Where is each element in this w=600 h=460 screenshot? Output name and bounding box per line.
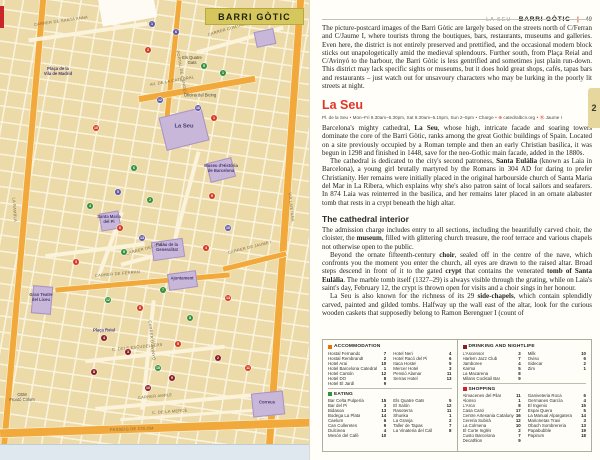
listing-section-label: SHOPPING	[469, 387, 496, 392]
listing-map-number: 9	[518, 438, 520, 443]
listing-subcolumn: Bar Celta Pulpería15Bar del Pi3Bidasoa13…	[328, 398, 386, 438]
map-marker-shop: 16	[195, 105, 201, 111]
listing-row: Papirum18	[528, 433, 586, 438]
info-separator: •	[475, 115, 477, 120]
info-segment: Jaume I	[546, 115, 562, 120]
listing-subcolumn: L'Ascensor3Harlem Jazz Club7Jamboree4Kar…	[463, 351, 521, 381]
listing-section-label: DRINKING AND NIGHTLIFE	[469, 344, 535, 349]
listings-right-half: DRINKING AND NIGHTLIFEL'Ascensor3Harlem …	[457, 340, 592, 451]
poi-label: Plaça Reial	[93, 329, 115, 334]
listing-columns: Bar Celta Pulpería15Bar del Pi3Bidasoa13…	[328, 398, 452, 438]
listing-name: Milans Cocktail Bar	[463, 376, 501, 381]
map-marker-acc: 1	[211, 115, 217, 121]
bold-term: crypt	[445, 267, 461, 275]
paragraph: The admission charge includes entry to a…	[322, 226, 592, 251]
listing-row: Milans Cocktail Bar9	[463, 376, 521, 381]
listing-name: Decathlon	[463, 438, 483, 443]
practical-info-line: Pl. de la Seu•Mon–Fri 9.30am–6.30pm, Sat…	[322, 115, 592, 121]
listing-subcolumn: Almacenes del Pilar11Alonso1L'Arca8Casa …	[463, 393, 521, 443]
category-square-icon	[463, 345, 467, 349]
listing-columns: Almacenes del Pilar11Alonso1L'Arca8Casa …	[463, 393, 587, 443]
bold-term: museum	[357, 234, 382, 242]
listing-name: Mesón del Café	[328, 433, 359, 438]
listing-name: La Vinateria del Call	[393, 428, 432, 433]
paragraph: Barcelona's mighty cathedral, La Seu, wh…	[322, 124, 592, 157]
info-segment: Pl. de la Seu	[322, 115, 348, 120]
map-title: BARRI GÒTIC	[218, 12, 291, 22]
map-marker-eat: 12	[105, 297, 111, 303]
poi-label: Gran Teatre del Liceu	[29, 293, 52, 303]
text-run: that contains the venerated	[461, 267, 547, 275]
map-marker-eat: 2	[147, 197, 153, 203]
info-segment: Mon–Fri 9.30am–6.30pm, Sat 9.30am–5.15pm…	[353, 115, 474, 120]
listing-name: Papirum	[528, 433, 544, 438]
listing-section-label: EATING	[334, 392, 353, 397]
article-page: LA SEU BARRI GÒTIC | 49 The picture-post…	[322, 0, 592, 460]
map-marker-acc: 9	[209, 193, 215, 199]
text-run: The cathedral is dedicated to the city's…	[330, 157, 496, 165]
listing-row: La Vinateria del Call8	[393, 428, 451, 433]
poi-label: La Seu	[174, 124, 193, 131]
map-marker-shop: 5	[115, 189, 121, 195]
map-marker-acc: 6	[117, 225, 123, 231]
bold-term: choir	[439, 251, 455, 259]
map-marker-shop: 10	[225, 225, 231, 231]
map-marker-acc: 2	[145, 47, 151, 53]
paragraph: La Seu is also known for the richness of…	[322, 292, 592, 317]
listings-left-half: ACCOMMODATIONHostal Fernando7Hostal Remb…	[323, 340, 457, 451]
map-marker-eat: 9	[121, 249, 127, 255]
map-marker-eat: 15	[155, 365, 161, 371]
map-marker-shop: 1	[149, 21, 155, 27]
subsection-paragraphs: The admission charge includes entry to a…	[322, 226, 592, 317]
poi-label: Palau de la Generalitat	[156, 243, 178, 253]
listing-row: Mesón del Café10	[328, 433, 386, 438]
listing-map-number: 10	[381, 433, 386, 438]
poi-label: Ajuntament	[170, 277, 193, 282]
poi-label: Oficina del Bicing	[184, 94, 216, 99]
listing-row: Serras Hotel13	[393, 376, 451, 381]
map-marker-eat: 7	[160, 287, 166, 293]
info-segment: Charge	[479, 115, 494, 120]
info-separator: •	[537, 115, 539, 120]
bold-term: Santa Eulàlia	[496, 157, 537, 165]
listing-subcolumn: Hotel Neri4Hotel Racó del Pi6Itaca Hoste…	[393, 351, 451, 386]
map-marker-acc: 8	[137, 305, 143, 311]
listing-section-label: ACCOMMODATION	[334, 344, 380, 349]
map-marker-shop: 6	[173, 29, 179, 35]
text-run: Barcelona's mighty cathedral,	[322, 124, 414, 132]
page-edge-mark	[0, 6, 4, 28]
listing-divider	[463, 383, 587, 384]
map-marker-acc: 5	[175, 341, 181, 347]
text-run: Beyond the ornate fifteenth-century	[330, 251, 439, 259]
listing-columns: Hostal Fernando7Hostal Rembrandt2Hotel A…	[328, 351, 452, 386]
text-run: (known as Laia in Barcelona), a young gi…	[322, 157, 592, 206]
listing-row: Decathlon9	[463, 438, 521, 443]
listing-subcolumn: Milk10Oviso6Sidecar2Zim1	[528, 351, 586, 381]
map-marker-acc: 10	[93, 125, 99, 131]
listing-map-number: 9	[518, 376, 520, 381]
chapter-tab: 2	[588, 88, 600, 128]
listing-columns: L'Ascensor3Harlem Jazz Club7Jamboree4Kar…	[463, 351, 587, 381]
map-barri-gotic: CARRER DE SANTA ANNACARRER COMTALAV. DE …	[0, 0, 310, 460]
running-head-section: LA SEU	[486, 17, 511, 23]
category-square-icon	[328, 345, 332, 349]
map-marker-drink: 9	[169, 375, 175, 381]
poi-label: Els Quatre Gats	[182, 56, 202, 66]
listing-section-title: EATING	[328, 392, 452, 397]
article-body: La Seu Pl. de la Seu•Mon–Fri 9.30am–6.30…	[322, 96, 592, 317]
bold-term: side-chapels	[478, 292, 514, 300]
listing-subcolumn: Els Quatre Gats5El Salón12Rasoterra11Shu…	[393, 398, 451, 438]
listing-name: Serras Hotel	[393, 376, 417, 381]
poi-label: Santa Maria del Pi	[97, 215, 121, 225]
map-marker-drink: 8	[91, 369, 97, 375]
listing-map-number: 18	[581, 433, 586, 438]
poi-label: CEM Frontó Colom	[9, 393, 34, 403]
map-marker-eat: 1	[220, 70, 226, 76]
section-heading: La Seu	[322, 98, 592, 112]
map-marker-drink: 3	[125, 349, 131, 355]
listing-section-title: SHOPPING	[463, 387, 587, 392]
listing-map-number: 1	[584, 366, 586, 371]
listings-box: ACCOMMODATIONHostal Fernando7Hostal Remb…	[322, 339, 592, 452]
map-marker-eat: 5	[201, 63, 207, 69]
map-marker-acc: 13	[225, 295, 231, 301]
map-marker-acc: 11	[245, 365, 251, 371]
listing-map-number: 13	[447, 376, 452, 381]
paragraph: Beyond the ornate fifteenth-century choi…	[322, 251, 592, 292]
map-marker-drink: 10	[145, 385, 151, 391]
paragraph: The cathedral is dedicated to the city's…	[322, 157, 592, 207]
listing-map-number: 9	[384, 381, 386, 386]
listing-row: Zim1	[528, 366, 586, 371]
listing-section-title: DRINKING AND NIGHTLIFE	[463, 344, 587, 349]
section-paragraphs: Barcelona's mighty cathedral, La Seu, wh…	[322, 124, 592, 207]
harbour-water	[0, 444, 309, 460]
bold-term: La Seu	[414, 124, 437, 132]
map-marker-acc: 4	[203, 245, 209, 251]
map-marker-drink: 2	[215, 355, 221, 361]
listing-subcolumn: Hostal Fernando7Hostal Rembrandt2Hotel A…	[328, 351, 386, 386]
chapter-tab-number: 2	[591, 103, 596, 113]
map-marker-eat: 4	[87, 203, 93, 209]
text-run: . The marble tomb itself (1327–29) is al…	[322, 276, 592, 292]
category-square-icon	[463, 387, 467, 391]
listing-map-number: 8	[449, 428, 451, 433]
listing-row: Hotel El Jardí9	[328, 381, 386, 386]
map-marker-acc: 3	[73, 259, 79, 265]
listing-name: Hotel El Jardí	[328, 381, 354, 386]
map-marker-eat: 8	[187, 315, 193, 321]
listing-name: Zim	[528, 366, 535, 371]
map-marker-shop: 13	[139, 235, 145, 241]
header-rule	[322, 19, 592, 20]
info-separator: •	[350, 115, 352, 120]
listing-divider	[328, 388, 452, 389]
map-marker-drink: 4	[101, 335, 107, 341]
page-number: 49	[585, 17, 592, 23]
poi-label: Museu d'Història de Barcelona	[204, 164, 238, 174]
info-segment: catedralbcn.org	[503, 115, 535, 120]
subsection-heading: The cathedral interior	[322, 214, 592, 224]
info-separator: •	[495, 115, 497, 120]
poi-label: Correus	[259, 401, 275, 406]
map-title-banner: BARRI GÒTIC	[205, 8, 304, 25]
listing-subcolumn: Ganiveteria Roca6Germanes García4El Inge…	[528, 393, 586, 443]
map-marker-shop: 12	[157, 97, 163, 103]
poi-label: Plaça de la Vila de Madrid	[44, 67, 72, 77]
text-run: La Seu is also known for the richness of…	[330, 292, 478, 300]
map-marker-eat: 6	[131, 165, 137, 171]
guidebook-spread: CARRER DE SANTA ANNACARRER COMTALAV. DE …	[0, 0, 600, 460]
listing-section-title: ACCOMMODATION	[328, 344, 452, 349]
intro-paragraph: The picture-postcard images of the Barri…	[322, 24, 592, 90]
category-square-icon	[328, 392, 332, 396]
